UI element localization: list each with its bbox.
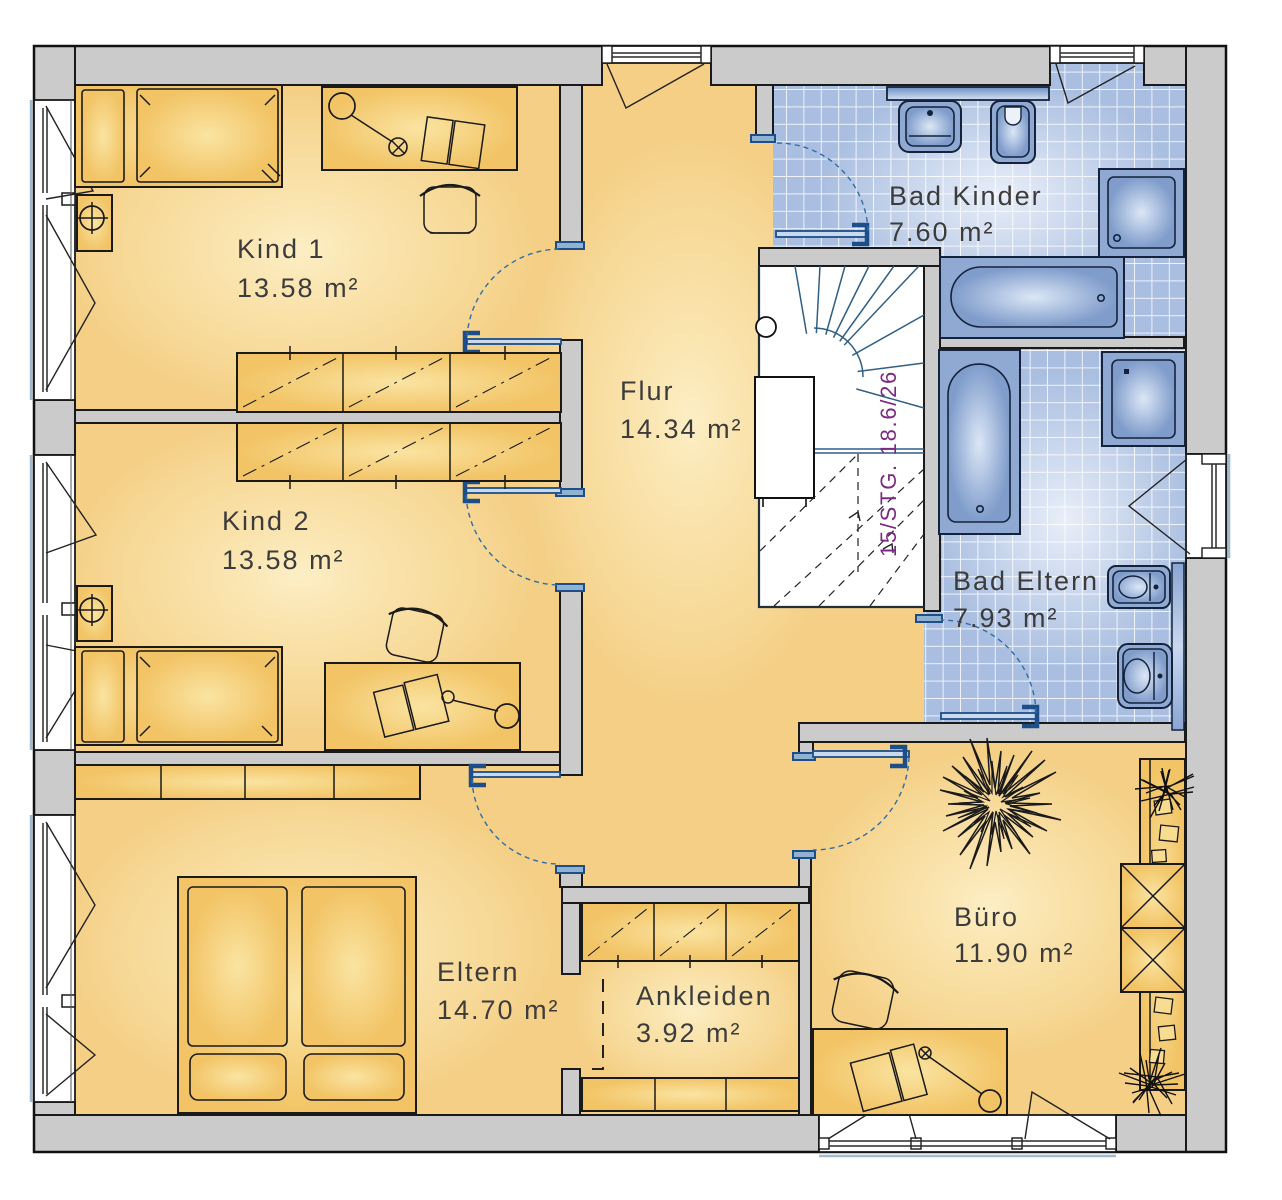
svg-text:Kind 1: Kind 1 — [237, 234, 326, 264]
svg-text:7.93 m²: 7.93 m² — [953, 603, 1059, 633]
svg-text:Bad Eltern: Bad Eltern — [953, 566, 1099, 596]
svg-text:14.70 m²: 14.70 m² — [437, 995, 560, 1025]
svg-text:11.90 m²: 11.90 m² — [954, 938, 1075, 968]
svg-text:7.60 m²: 7.60 m² — [889, 217, 995, 247]
svg-text:Büro: Büro — [954, 902, 1019, 932]
svg-text:13.58 m²: 13.58 m² — [237, 273, 360, 303]
svg-text:13.58 m²: 13.58 m² — [222, 545, 345, 575]
svg-text:Kind 2: Kind 2 — [222, 506, 311, 536]
svg-text:3.92 m²: 3.92 m² — [636, 1018, 742, 1048]
svg-text:14.34 m²: 14.34 m² — [620, 414, 743, 444]
svg-text:Ankleiden: Ankleiden — [636, 981, 773, 1011]
svg-text:Bad Kinder: Bad Kinder — [889, 181, 1043, 211]
svg-text:15/STG. 18.6/26: 15/STG. 18.6/26 — [876, 370, 901, 557]
svg-text:Flur: Flur — [620, 376, 675, 406]
svg-text:Eltern: Eltern — [437, 957, 520, 987]
